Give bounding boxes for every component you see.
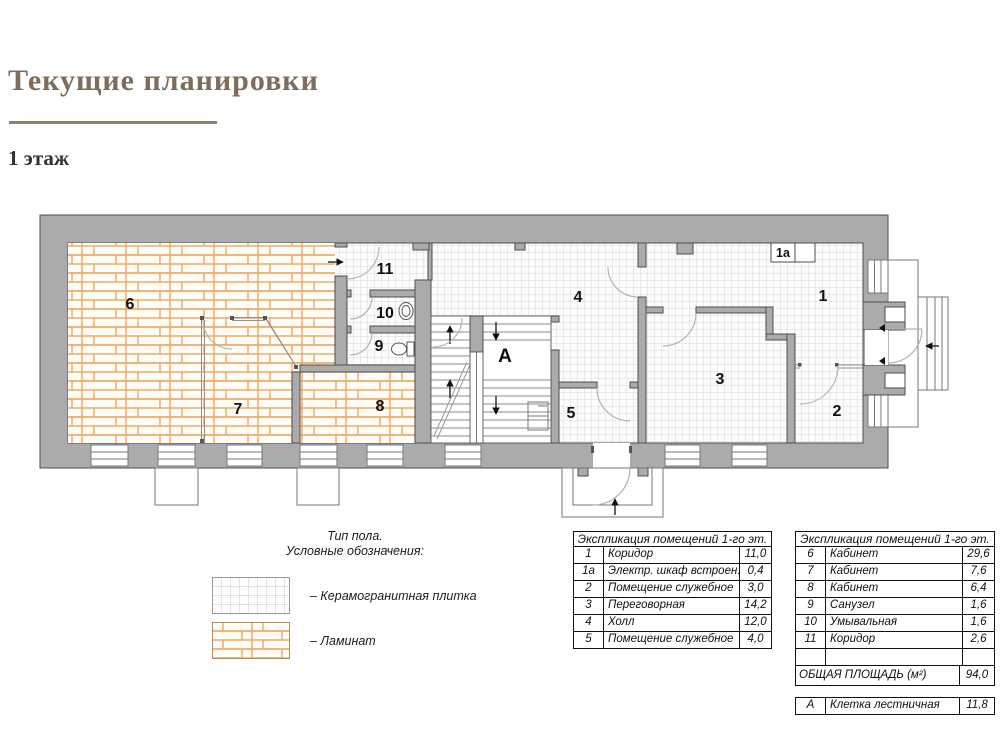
- row-number: 6: [796, 547, 826, 563]
- table-row: 5Помещение служебное4,0: [574, 631, 771, 648]
- toilet: [392, 343, 407, 355]
- table-row: 1Коридор11,0: [574, 546, 771, 563]
- toilet-tank: [407, 342, 414, 356]
- page-title: Текущие планировки: [8, 64, 319, 98]
- room-label-stair: А: [498, 346, 512, 367]
- room-label-5: 5: [567, 405, 576, 422]
- legend-swatch-laminate: [212, 622, 290, 659]
- table-row: 8Кабинет6,4: [796, 580, 994, 597]
- row-area: 6,4: [963, 581, 994, 597]
- room-label-1a: 1a: [776, 246, 791, 260]
- row-number: 1а: [574, 564, 604, 580]
- table-header: Экспликация помещений 1-го эт.: [574, 532, 771, 546]
- side-entrance: [863, 260, 948, 427]
- row-name: Холл: [604, 615, 740, 631]
- porch-landing: [888, 260, 918, 427]
- row-name: Коридор: [826, 632, 963, 648]
- room-label-8: 8: [376, 398, 385, 415]
- row-area: 3,0: [740, 581, 771, 597]
- explication-table-right: Экспликация помещений 1-го эт. 6Кабинет2…: [795, 531, 995, 686]
- row-area: 29,6: [963, 547, 994, 563]
- table-row: 3Переговорная14,2: [574, 597, 771, 614]
- room-label-4: 4: [574, 289, 583, 306]
- row-area: 2,6: [963, 632, 994, 648]
- total-row: ОБЩАЯ ПЛОЩАДЬ (м²) 94,0: [796, 665, 994, 685]
- room-label-1: 1: [819, 288, 828, 305]
- table-row: 4Холл12,0: [574, 614, 771, 631]
- row-number: 4: [574, 615, 604, 631]
- row-name: Помещение служебное: [604, 632, 740, 648]
- row-number: 3: [574, 598, 604, 614]
- row-area: 1,6: [963, 598, 994, 614]
- row-name: Санузел: [826, 598, 963, 614]
- legend-swatch-tile: [212, 577, 290, 614]
- window-well: [297, 468, 339, 505]
- row-area: 11,0: [740, 547, 771, 563]
- row-name: [826, 649, 963, 665]
- table-row: 11Коридор2,6: [796, 631, 994, 648]
- slide: Текущие планировки 1 этаж: [0, 0, 1000, 750]
- row-name: Кабинет: [826, 564, 963, 580]
- porch-steps: [918, 297, 948, 390]
- room-label-7: 7: [234, 401, 243, 418]
- table-row: 6Кабинет29,6: [796, 546, 994, 563]
- laminate-floor-room-8: [300, 372, 415, 443]
- row-name: Умывальная: [826, 615, 963, 631]
- row-name: Клетка лестничная: [826, 698, 960, 714]
- room-label-11: 11: [377, 261, 394, 278]
- floor-label: 1 этаж: [8, 146, 69, 171]
- row-name: Кабинет: [826, 581, 963, 597]
- stair-row-table: А Клетка лестничная 11,8: [795, 697, 995, 715]
- row-number: [796, 649, 826, 665]
- table-row: 9Санузел1,6: [796, 597, 994, 614]
- legend-title-line1: Тип пола.: [230, 529, 480, 544]
- row-number: 7: [796, 564, 826, 580]
- room-label-2: 2: [833, 403, 842, 420]
- staircase: [431, 316, 551, 443]
- explication-table-left: Экспликация помещений 1-го эт. 1Коридор1…: [573, 531, 772, 649]
- row-number: 10: [796, 615, 826, 631]
- room-label-10: 10: [376, 305, 394, 322]
- row-number: 5: [574, 632, 604, 648]
- row-area: 1,6: [963, 615, 994, 631]
- floor-plan: 1a 6 7 8 9 10 11 4 5 3 1 2 А: [38, 210, 963, 520]
- room-label-3: 3: [716, 371, 725, 388]
- row-name: Коридор: [604, 547, 740, 563]
- row-number: 8: [796, 581, 826, 597]
- row-name: Кабинет: [826, 547, 963, 563]
- row-area: 14,2: [740, 598, 771, 614]
- window-well: [155, 468, 198, 505]
- row-name: Переговорная: [604, 598, 740, 614]
- total-label: ОБЩАЯ ПЛОЩАДЬ (м²): [796, 666, 960, 685]
- table-row: 1аЭлектр. шкаф встроен.0,4: [574, 563, 771, 580]
- table-row: 2Помещение служебное3,0: [574, 580, 771, 597]
- table-row: [796, 648, 994, 665]
- row-area: 0,4: [740, 564, 771, 580]
- row-name: Помещение служебное: [604, 581, 740, 597]
- total-value: 94,0: [960, 666, 994, 685]
- row-area: 11,8: [960, 698, 994, 714]
- room-label-6: 6: [126, 296, 135, 313]
- table-header: Экспликация помещений 1-го эт.: [796, 532, 994, 546]
- row-area: [963, 649, 994, 665]
- legend-title: Тип пола. Условные обозначения:: [230, 529, 480, 559]
- legend-label-laminate: – Ламинат: [310, 634, 376, 648]
- row-name: Электр. шкаф встроен.: [604, 564, 740, 580]
- table-row: 10Умывальная1,6: [796, 614, 994, 631]
- legend-label-tile: – Керамогранитная плитка: [310, 589, 477, 603]
- closet-1a: 1a: [771, 243, 815, 262]
- table-row: 7Кабинет7,6: [796, 563, 994, 580]
- row-number: 1: [574, 547, 604, 563]
- row-number: 9: [796, 598, 826, 614]
- row-area: 4,0: [740, 632, 771, 648]
- table-row: А Клетка лестничная 11,8: [796, 698, 994, 714]
- row-number: 11: [796, 632, 826, 648]
- title-underline: [9, 121, 217, 124]
- row-area: 7,6: [963, 564, 994, 580]
- row-area: 12,0: [740, 615, 771, 631]
- room-label-9: 9: [375, 338, 384, 355]
- row-number: 2: [574, 581, 604, 597]
- row-number: А: [796, 698, 826, 714]
- legend-title-line2: Условные обозначения:: [230, 544, 480, 559]
